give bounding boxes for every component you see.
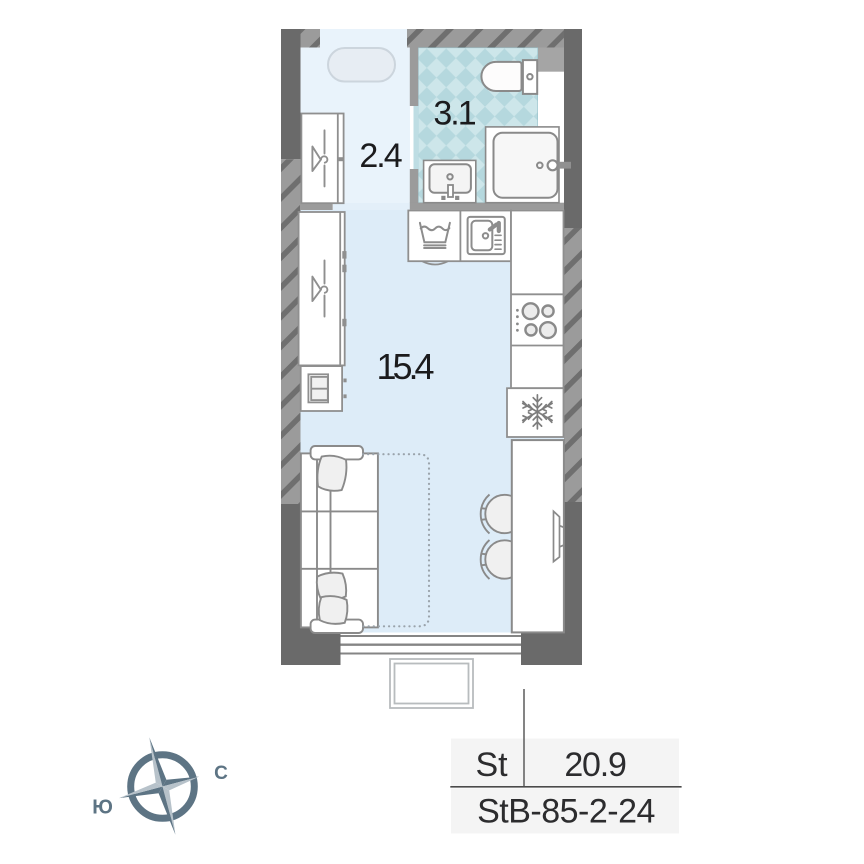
svg-text:Ю: Ю [92, 797, 113, 819]
svg-text:StB-85-2-24: StB-85-2-24 [477, 793, 655, 831]
svg-text:3.1: 3.1 [433, 95, 475, 133]
svg-text:20.9: 20.9 [564, 746, 626, 784]
svg-text:15.4: 15.4 [376, 346, 433, 387]
svg-text:С: С [214, 763, 228, 784]
svg-text:2.4: 2.4 [359, 137, 401, 175]
svg-text:St: St [475, 746, 508, 784]
